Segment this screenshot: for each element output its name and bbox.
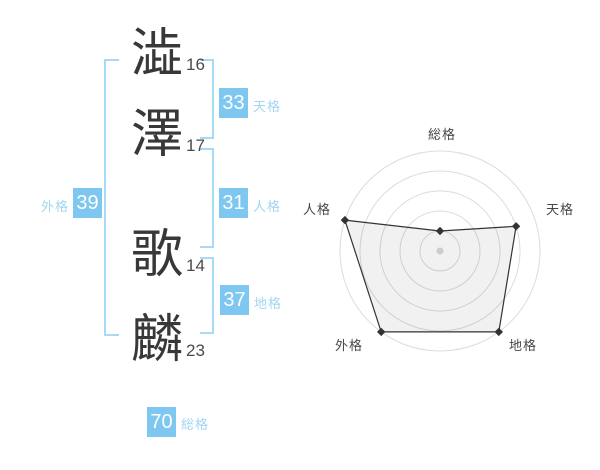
radar-axis-label-gaikaku: 外格 — [319, 335, 379, 354]
radar-axis-label-jinkaku: 人格 — [287, 199, 347, 218]
name-fortune-panel: 澁 16 澤 17 歌 14 麟 23 33 天格 31 人格 39 外格 37… — [0, 0, 600, 470]
radar-chart — [0, 0, 600, 470]
radar-data-polygon — [345, 220, 516, 332]
radar-axis-label-chikaku: 地格 — [493, 335, 553, 354]
radar-axis-label-tenkaku: 天格 — [530, 199, 590, 218]
radar-center-dot — [437, 248, 444, 255]
radar-axis-label-soukaku: 総格 — [412, 124, 472, 143]
